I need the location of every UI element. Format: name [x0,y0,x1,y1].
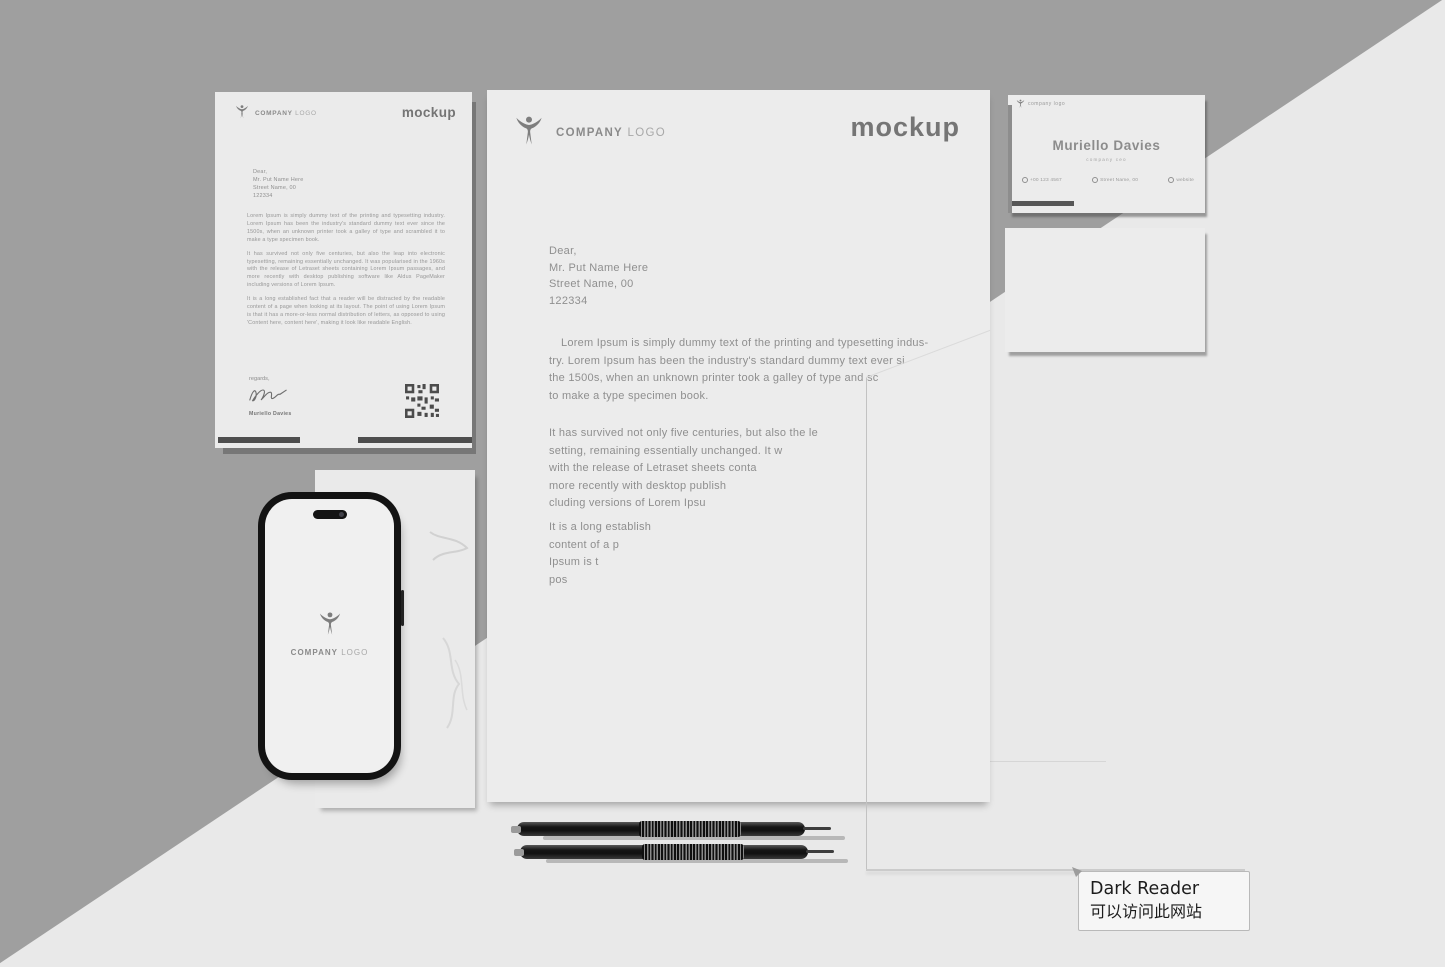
card-holder-title: company ceo [1008,157,1205,162]
wordmark: mockup [850,112,960,143]
company-logo-icon [318,611,342,637]
letter-body: Lorem Ipsum is simply dummy text of the … [247,213,445,334]
letter-paragraph-3: It is a long establishcontent of a pIpsu… [549,519,651,589]
globe-icon [1168,177,1174,183]
letter-paragraph-2: It has survived not only five centuries,… [549,425,818,513]
contact-item: website [1168,177,1194,183]
pen [509,821,839,841]
mockup-scene: COMPANY LOGO mockup Dear,Mr. Put Name He… [0,0,1445,967]
pen-grip [642,844,744,860]
pen-tip [514,849,524,856]
letterhead-large: COMPANY LOGO mockup Dear,Mr. Put Name He… [487,90,990,802]
footer-bar [218,437,300,443]
brand-name: COMPANY LOGO [556,127,666,139]
card-brand-label: company logo [1028,101,1065,107]
business-card-front: company logo Muriello Davies company ceo… [1008,95,1205,213]
phone-icon [1022,177,1028,183]
pen-tip [803,827,831,830]
company-logo-icon [1016,99,1025,109]
brand-name: COMPANY LOGO [265,648,394,657]
paper-edge [866,377,867,869]
pen-grip [639,821,741,837]
smartphone: COMPANY LOGO [258,492,401,780]
dark-reader-tooltip[interactable]: Dark Reader 可以访问此网站 [1078,871,1250,931]
contact-item: +00 123 4567 [1022,177,1062,183]
dynamic-island [313,510,347,519]
qr-code-icon [405,384,439,417]
pen-tip [511,826,521,833]
letterhead-small: COMPANY LOGO mockup Dear,Mr. Put Name He… [215,92,472,448]
location-icon [1092,177,1098,183]
pen [512,844,842,864]
company-logo-icon [235,104,249,120]
wordmark: mockup [402,105,456,120]
dark-reader-title: Dark Reader [1090,877,1238,901]
card-brand-row: company logo [1016,99,1065,109]
card-holder-name: Muriello Davies [1008,138,1205,153]
card-footer-bar [1012,201,1074,206]
phone-screen: COMPANY LOGO [265,499,394,773]
signature-icon [247,386,289,408]
card-contacts: +00 123 4567 Street Name, 00 website [1022,177,1194,183]
signatory-name: Muriello Davies [249,411,292,417]
camera-icon [339,512,344,517]
recipient-block: Dear,Mr. Put Name HereStreet Name, 00122… [253,168,303,200]
dark-reader-message: 可以访问此网站 [1090,901,1238,923]
recipient-block: Dear,Mr. Put Name HereStreet Name, 00122… [549,243,648,309]
brand-name: COMPANY LOGO [255,110,317,117]
phone-side-button [401,590,404,626]
closing: regards, [249,376,270,382]
footer-bar [358,437,472,443]
phone-logo-lockup: COMPANY LOGO [265,611,394,657]
contact-item: Street Name, 00 [1092,177,1138,183]
business-card-back [1005,228,1205,352]
pen-tip [806,850,834,853]
letter-paragraph-1: Lorem Ipsum is simply dummy text of the … [549,335,928,405]
company-logo-icon [514,115,544,147]
